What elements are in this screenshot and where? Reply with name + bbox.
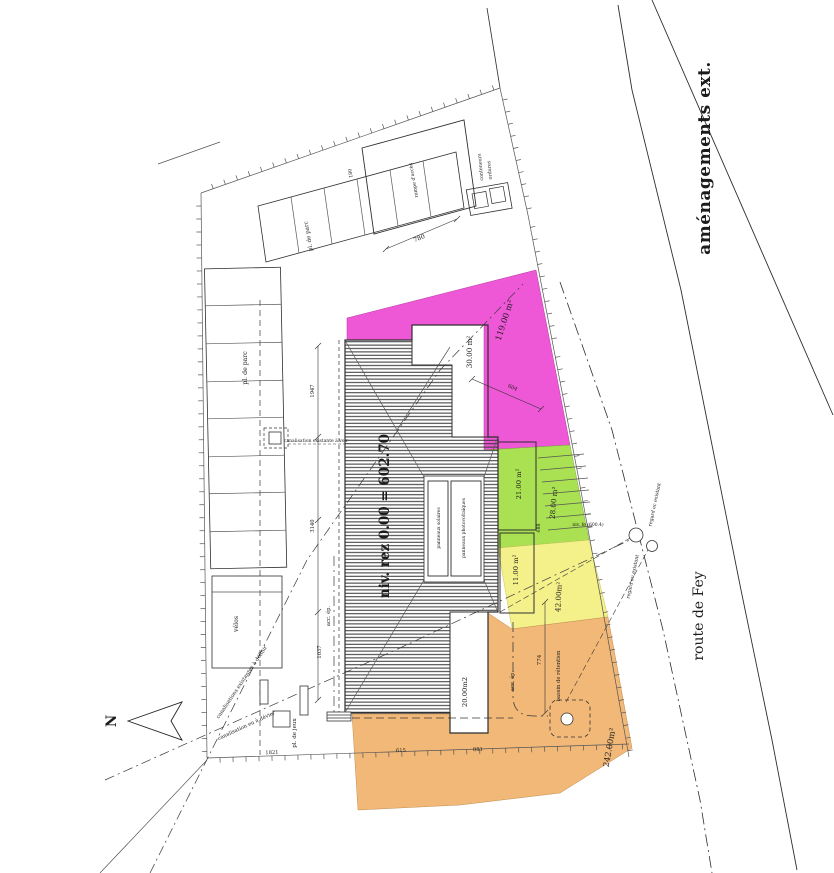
parking-left-column <box>204 267 286 569</box>
zone-yellow-area: 42.00m² <box>553 581 564 612</box>
manhole-ec <box>629 528 643 542</box>
dim-881: 881 <box>473 747 483 753</box>
ramp-label: rampe d'accès <box>407 162 420 198</box>
terrace-upper-area: 30.00 m² <box>465 336 474 369</box>
spot-level-label: niv. fe (600.4) <box>572 521 604 528</box>
north-arrow <box>128 702 182 740</box>
dim-774: 774 <box>537 654 543 665</box>
access-ep-label-2: acc. ép. <box>325 606 332 627</box>
panel-right-label: panneaux photovoltaïques <box>461 497 467 558</box>
panel-left-label: panneaux solaires <box>436 507 442 549</box>
dim-180: 180 <box>347 168 354 178</box>
manhole-ec-label: regard ec existant <box>647 482 662 527</box>
playground-label: pl. de jeux <box>292 717 298 747</box>
parking-left-label: pl. de parc <box>242 351 249 385</box>
roof-hatch <box>345 340 498 713</box>
north-letter: N <box>104 715 120 727</box>
site-plan-sheet: aménagements ext. route de Fey N niv. re… <box>0 0 834 873</box>
playground-equipment <box>260 680 351 727</box>
dim-688: 688 <box>536 523 542 532</box>
dim-3140: 3140 <box>310 519 316 532</box>
bike-room <box>212 576 282 668</box>
dim-1947: 1947 <box>310 384 316 397</box>
note-lower-pipe: canalisation eu à dévier <box>216 709 276 742</box>
parking-top-label: pl. de parc <box>303 221 314 252</box>
bike-room-label: vélos <box>233 616 240 633</box>
manholes <box>629 528 658 552</box>
note-hydrant: canalisation existante à voir <box>284 437 349 444</box>
access-ep-label-1: acc. ép. <box>509 671 516 692</box>
terrace-low-area: 11.00 m² <box>512 554 520 585</box>
dim-780: 780 <box>413 233 427 244</box>
street-label: route de Fey <box>691 571 707 660</box>
dim-615: 615 <box>396 748 406 754</box>
terrace-lower <box>450 612 488 733</box>
plan-title: aménagements ext. <box>695 61 715 255</box>
dim-1821: 1821 <box>265 750 278 756</box>
manhole-eu-label: regard eu existant <box>625 554 640 599</box>
dim-1037: 1037 <box>317 645 323 658</box>
terrace-lower-area: 20.00m2 <box>461 677 469 707</box>
building-level-label: niv. rez 0.00 = 602.70 <box>377 434 393 598</box>
manhole-eu <box>647 541 658 552</box>
building <box>339 325 498 733</box>
site-plan-drawing: aménagements ext. route de Fey N niv. re… <box>0 0 834 873</box>
parking-top-row <box>258 152 464 262</box>
terrace-mid-area: 21.00 m² <box>515 468 523 499</box>
basin-label: bassin de rétention <box>555 650 562 701</box>
containers-label-2: ordures <box>486 160 494 180</box>
containers-label-1: conteneurs <box>477 153 485 181</box>
